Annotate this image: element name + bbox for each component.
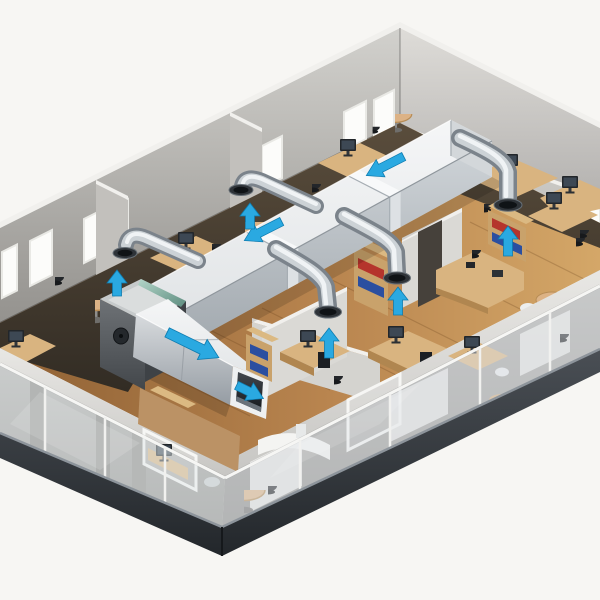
office-hvac-illustration-page xyxy=(0,0,600,600)
window-back-1 xyxy=(2,245,17,299)
stub-partition-1 xyxy=(96,180,128,275)
hvac-cutaway-illustration xyxy=(0,0,600,600)
window-back-2 xyxy=(30,230,52,286)
